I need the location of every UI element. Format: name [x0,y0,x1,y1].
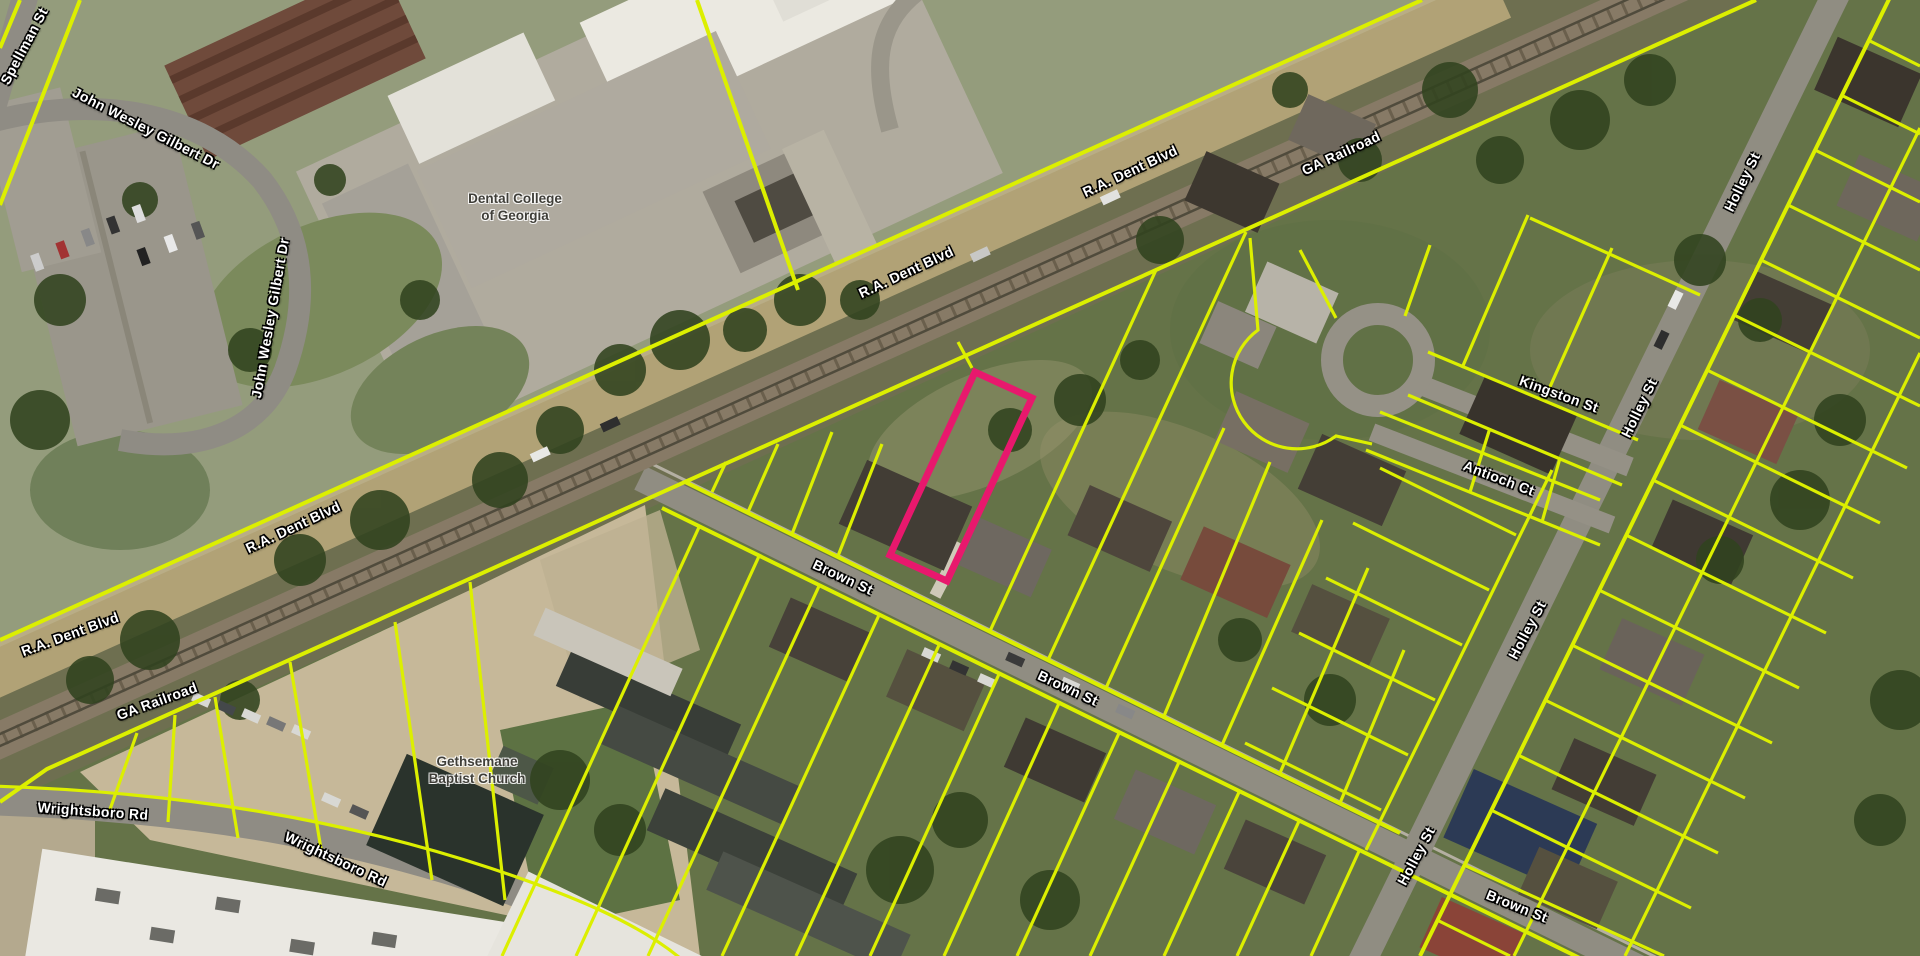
satellite-map[interactable]: Spellman StJohn Wesley Gilbert DrJohn We… [0,0,1920,956]
map-canvas[interactable] [0,0,1920,956]
